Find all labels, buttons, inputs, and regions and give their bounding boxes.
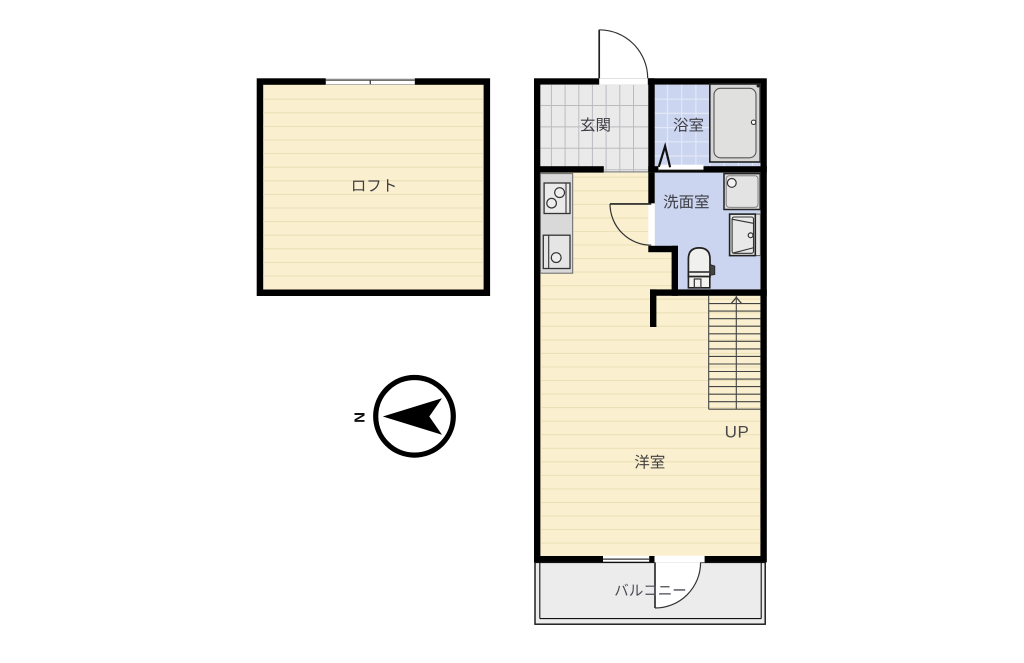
svg-text:UP: UP [725, 423, 750, 442]
svg-text:N: N [351, 412, 368, 423]
